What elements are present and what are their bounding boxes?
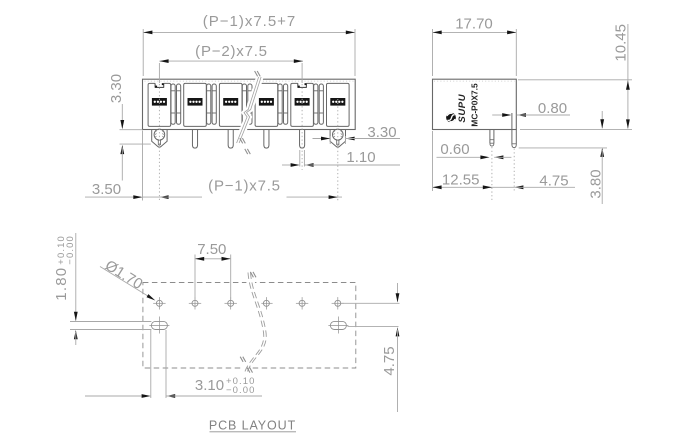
svg-text:4.75: 4.75 (381, 346, 398, 375)
svg-text:−0.00: −0.00 (65, 235, 76, 265)
svg-text:(P−1)x7.5+7: (P−1)x7.5+7 (203, 13, 297, 30)
svg-text:1.80: 1.80 (53, 267, 70, 301)
svg-text:(P−1)x7.5: (P−1)x7.5 (208, 178, 281, 195)
svg-text:7.50: 7.50 (197, 241, 226, 258)
svg-text:MC-P0X7.5: MC-P0X7.5 (470, 83, 480, 127)
svg-text:3.30: 3.30 (108, 74, 125, 103)
svg-text:(P−2)x7.5: (P−2)x7.5 (195, 43, 268, 60)
svg-text:10.45: 10.45 (613, 24, 630, 62)
svg-text:−0.00: −0.00 (226, 385, 256, 396)
svg-text:17.70: 17.70 (455, 16, 493, 33)
svg-text:PCB LAYOUT: PCB LAYOUT (209, 419, 296, 433)
svg-text:12.55: 12.55 (442, 171, 480, 188)
svg-text:0.80: 0.80 (538, 100, 567, 117)
svg-text:SUPU: SUPU (457, 93, 468, 122)
svg-text:1.10: 1.10 (346, 149, 375, 166)
svg-text:0.60: 0.60 (440, 141, 469, 158)
svg-text:3.50: 3.50 (92, 181, 121, 198)
svg-text:3.10: 3.10 (195, 377, 224, 394)
